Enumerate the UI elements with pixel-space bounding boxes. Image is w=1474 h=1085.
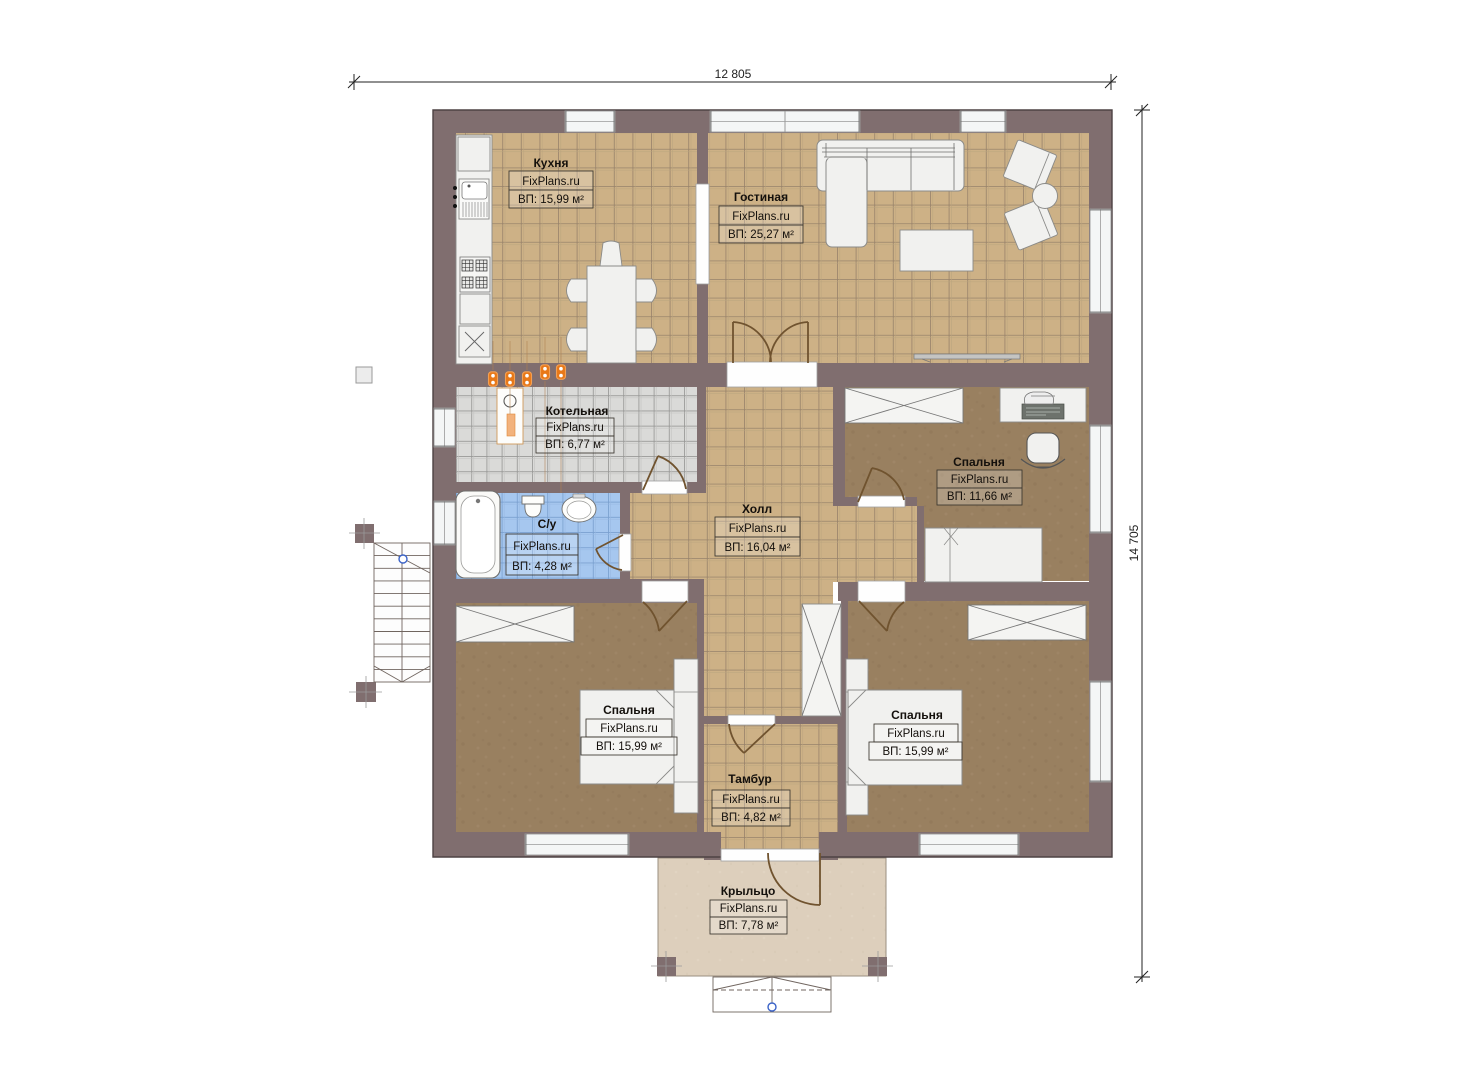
svg-text:Спальня: Спальня [891, 708, 943, 722]
svg-text:12 805: 12 805 [715, 67, 752, 81]
svg-text:FixPlans.ru: FixPlans.ru [887, 728, 945, 740]
svg-text:Тамбур: Тамбур [728, 772, 772, 786]
svg-text:FixPlans.ru: FixPlans.ru [720, 903, 778, 915]
svg-text:ВП: 15,99 м²: ВП: 15,99 м² [518, 194, 584, 206]
svg-text:FixPlans.ru: FixPlans.ru [522, 176, 580, 188]
svg-text:FixPlans.ru: FixPlans.ru [513, 541, 571, 553]
svg-text:Спальня: Спальня [603, 703, 655, 717]
svg-text:Кухня: Кухня [533, 156, 568, 170]
svg-text:С/у: С/у [538, 517, 557, 531]
svg-text:Котельная: Котельная [546, 404, 609, 418]
svg-text:ВП: 6,77 м²: ВП: 6,77 м² [545, 439, 605, 451]
svg-text:ВП: 11,66 м²: ВП: 11,66 м² [947, 491, 1012, 503]
svg-text:FixPlans.ru: FixPlans.ru [951, 474, 1009, 486]
svg-text:FixPlans.ru: FixPlans.ru [600, 723, 658, 735]
svg-text:Спальня: Спальня [953, 455, 1005, 469]
svg-text:ВП: 25,27 м²: ВП: 25,27 м² [728, 229, 794, 241]
svg-text:FixPlans.ru: FixPlans.ru [729, 523, 787, 535]
svg-text:ВП: 4,82 м²: ВП: 4,82 м² [721, 812, 781, 824]
svg-text:FixPlans.ru: FixPlans.ru [732, 211, 790, 223]
svg-text:ВП: 15,99 м²: ВП: 15,99 м² [596, 741, 662, 753]
svg-text:ВП: 4,28 м²: ВП: 4,28 м² [512, 561, 572, 573]
svg-text:ВП: 7,78 м²: ВП: 7,78 м² [719, 920, 779, 932]
svg-text:Холл: Холл [742, 502, 772, 516]
svg-text:FixPlans.ru: FixPlans.ru [722, 794, 780, 806]
svg-text:ВП: 15,99 м²: ВП: 15,99 м² [882, 746, 948, 758]
svg-text:ВП: 16,04 м²: ВП: 16,04 м² [724, 542, 790, 554]
svg-text:FixPlans.ru: FixPlans.ru [546, 422, 604, 434]
svg-text:14 705: 14 705 [1127, 524, 1141, 561]
svg-text:Гостиная: Гостиная [734, 190, 788, 204]
svg-text:Крыльцо: Крыльцо [721, 884, 776, 898]
